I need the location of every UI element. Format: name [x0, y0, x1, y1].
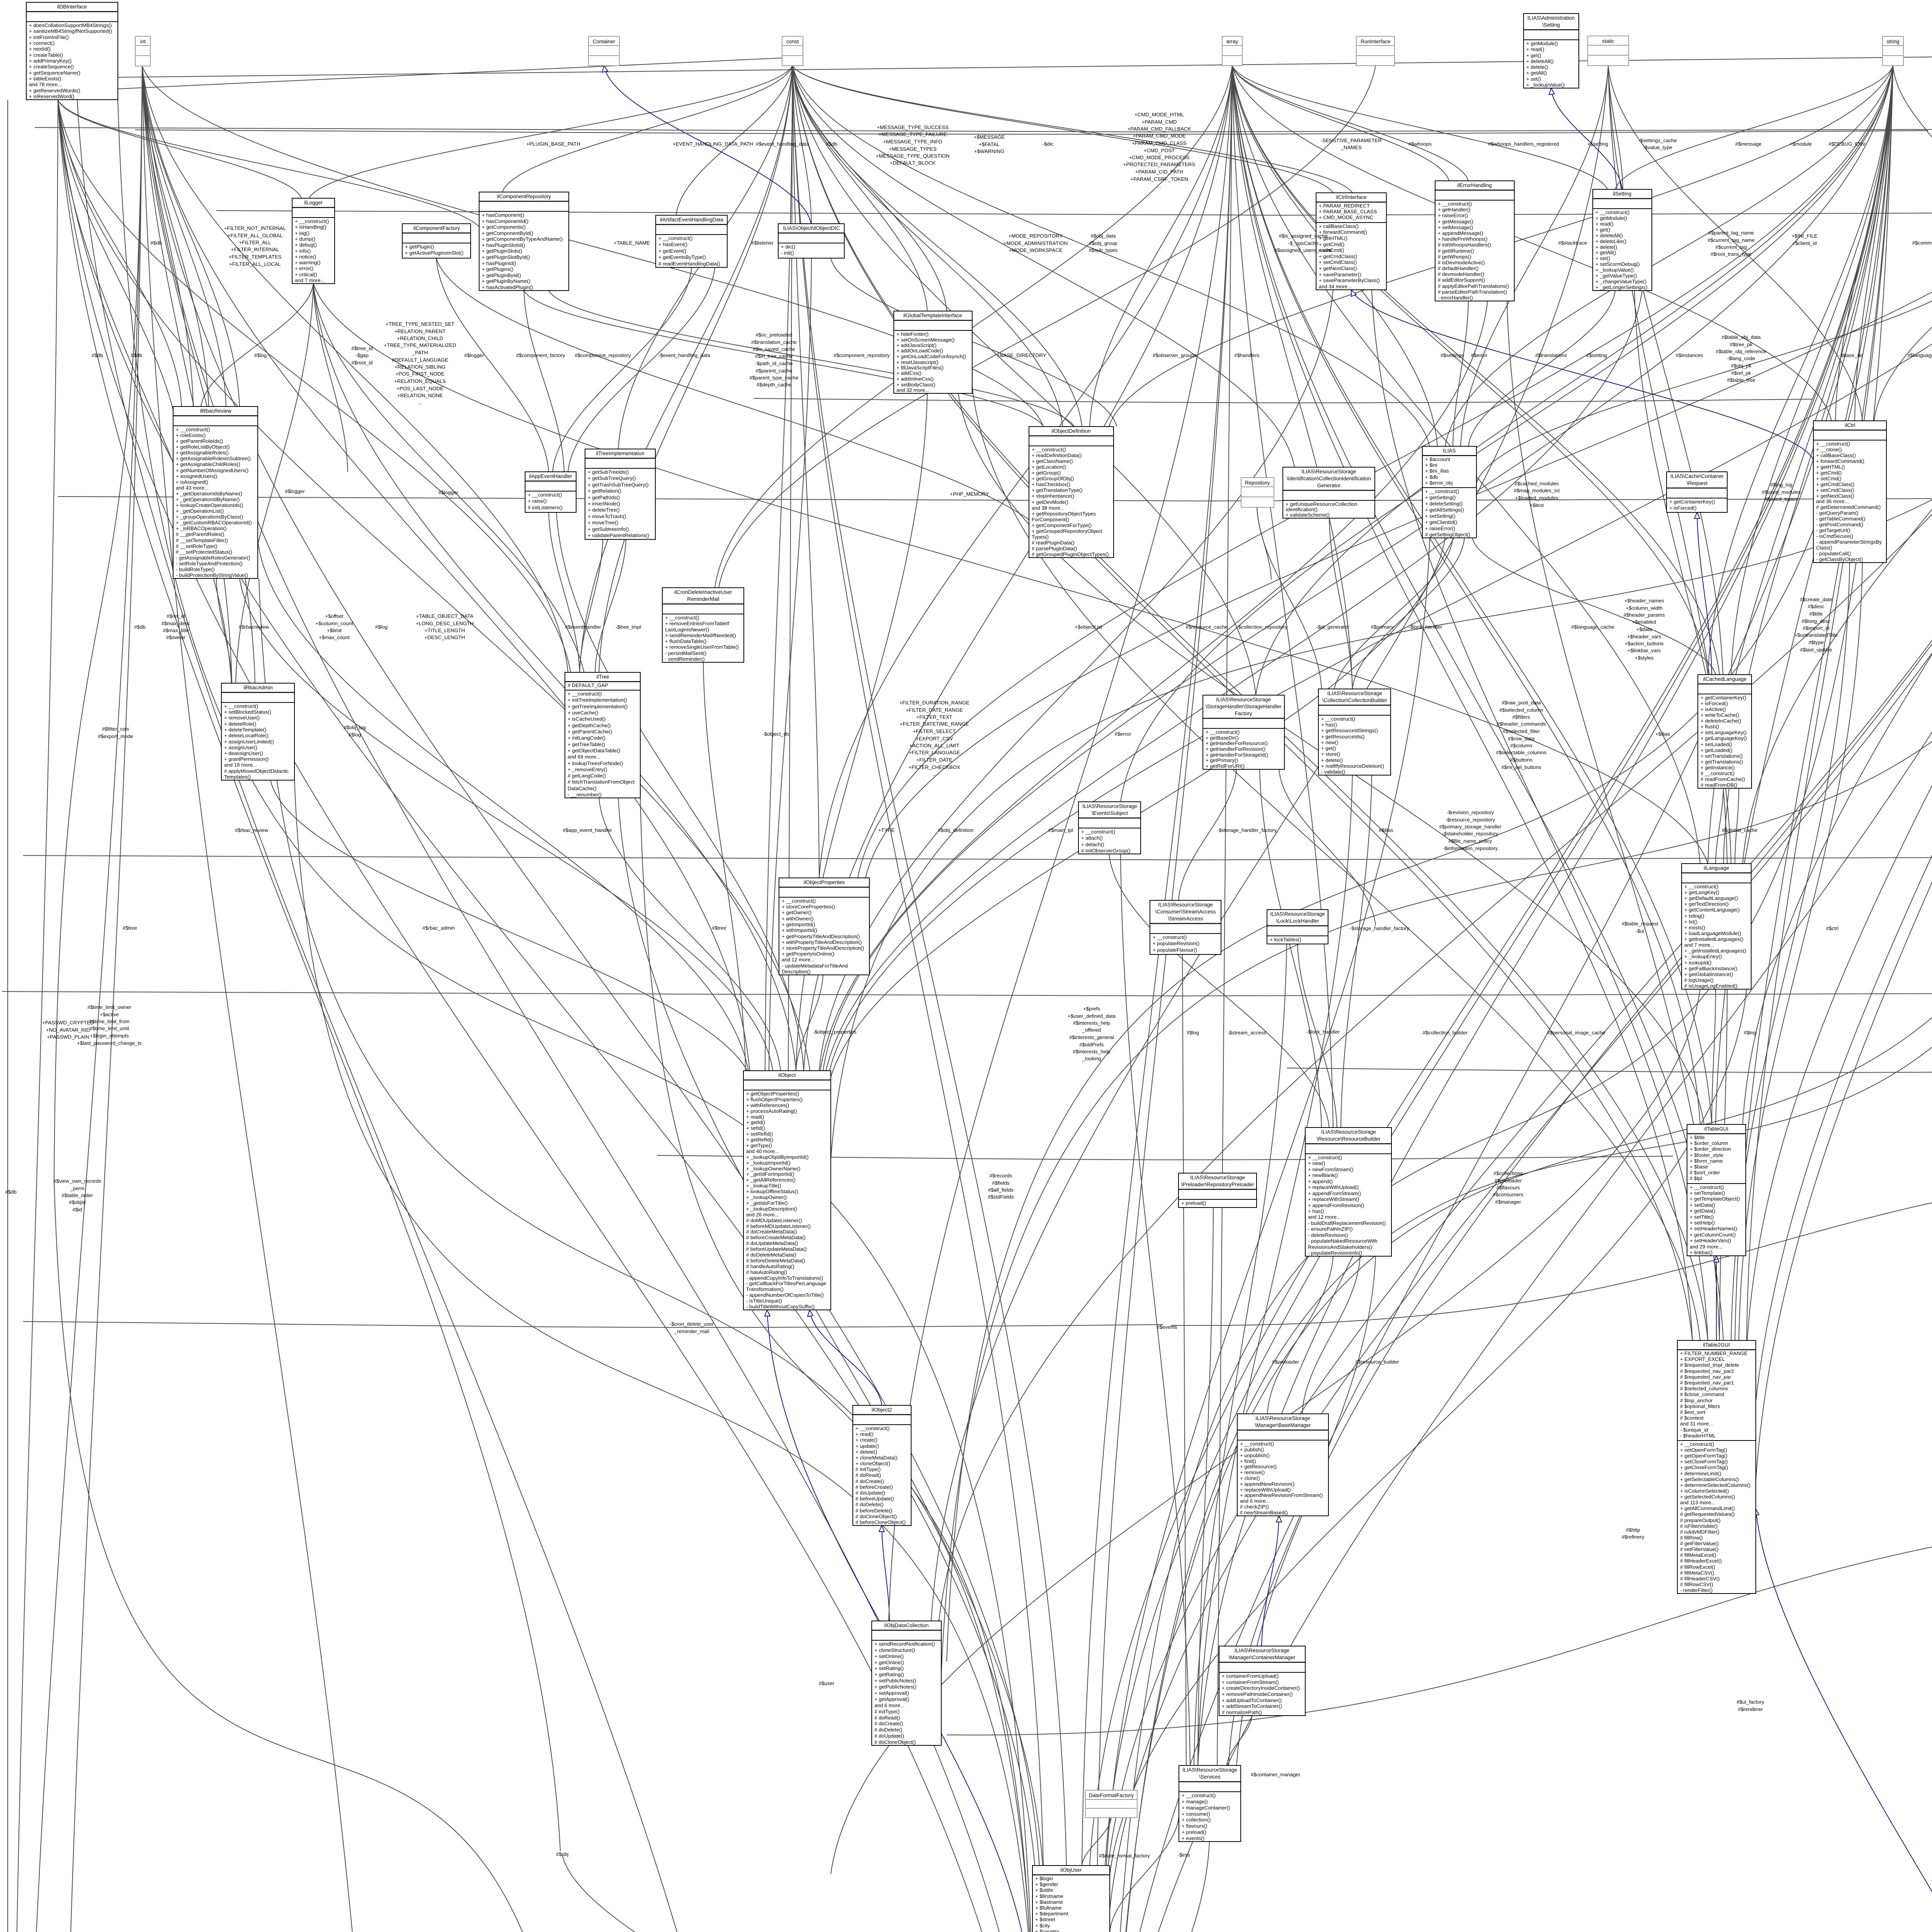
svg-text:#$parent_tag_name: #$parent_tag_name — [1708, 230, 1754, 236]
svg-text:+ getRelation(): + getRelation() — [588, 488, 621, 494]
svg-text:\Identification\CollectionIden: \Identification\CollectionIdentification — [1287, 476, 1371, 481]
svg-text:+ cloneStructure(): + cloneStructure() — [874, 1647, 915, 1653]
svg-text:#$logger: #$logger — [438, 490, 458, 495]
svg-text:# doRead(): # doRead() — [855, 1472, 881, 1478]
svg-text:#$raw_post_data: #$raw_post_data — [1502, 700, 1541, 706]
svg-text:+MESSAGE_TYPE_INFO: +MESSAGE_TYPE_INFO — [883, 139, 942, 145]
svg-text:+ flavours(): + flavours() — [1182, 1823, 1207, 1829]
svg-text:-$lang_code: -$lang_code — [1727, 355, 1755, 361]
svg-text:+ deleteAll(): + deleteAll() — [1526, 58, 1554, 64]
svg-text:and 34 more...: and 34 more... — [1319, 284, 1352, 289]
svg-text:-$storage_handler_factory: -$storage_handler_factory — [1217, 827, 1277, 833]
svg-text:#$stdFields: #$stdFields — [988, 1194, 1014, 1200]
svg-text:- getPostCommand(): - getPostCommand() — [1816, 522, 1863, 527]
svg-text:+ clone(): + clone() — [1240, 1475, 1260, 1481]
svg-text:-$collection_repository: -$collection_repository — [1236, 624, 1287, 630]
svg-text:+DEFAULT_BLOCK: +DEFAULT_BLOCK — [890, 160, 935, 166]
svg-text:+RELATION_CHILD: +RELATION_CHILD — [397, 335, 443, 341]
svg-text:ilTable2GUI: ilTable2GUI — [1703, 1342, 1730, 1348]
svg-text:+ $ini_ilias: + $ini_ilias — [1425, 468, 1449, 474]
svg-text:+ getPrimary(): + getPrimary() — [1206, 757, 1238, 763]
svg-text:+ setScormDebug(): + setScormDebug() — [1595, 261, 1640, 267]
svg-text:+ validateParentRelations(): + validateParentRelations() — [588, 532, 649, 538]
svg-text:+ getClassName(): + getClassName() — [1032, 458, 1073, 464]
svg-text:+ callBaseClass(): + callBaseClass() — [1816, 452, 1856, 458]
svg-text:+ getNextClass(): + getNextClass() — [1319, 265, 1357, 271]
svg-text:#$global_cache: #$global_cache — [1722, 827, 1757, 833]
svg-text:+ getHandler(): + getHandler() — [1438, 207, 1471, 213]
svg-text:+ $gender: + $gender — [1035, 1881, 1058, 1887]
svg-text:+TREE_TYPE_NESTED_SET: +TREE_TYPE_NESTED_SET — [386, 321, 454, 327]
svg-text:- populateCall(): - populateCall() — [1816, 551, 1851, 556]
svg-text:+ getMessage(): + getMessage() — [1438, 219, 1473, 224]
svg-text:+ getCmdClass(): + getCmdClass() — [1816, 481, 1854, 487]
svg-text:+ setTemplate(): + setTemplate() — [1690, 1190, 1725, 1196]
svg-text:+ set(): + set() — [1526, 76, 1541, 82]
svg-text:#$column: #$column — [1510, 743, 1532, 748]
svg-text:+ nextId(): + nextId() — [29, 46, 51, 52]
svg-text:+PARAM_CMD_CLASS: +PARAM_CMD_CLASS — [1132, 140, 1187, 146]
svg-text:ilCachedLanguage: ilCachedLanguage — [1703, 676, 1747, 682]
svg-text:+ setTranslations(): + setTranslations() — [1701, 753, 1743, 759]
svg-text:+ getAllSettings(): + getAllSettings() — [1425, 507, 1464, 513]
svg-text:+ _getAllReferences(): + _getAllReferences() — [746, 1177, 796, 1183]
svg-text:+ initFromIniFile(): + initFromIniFile() — [29, 34, 69, 40]
svg-text:#$db: #$db — [92, 352, 103, 358]
svg-text:\Preloader\RepositoryPreloader: \Preloader\RepositoryPreloader — [1181, 1182, 1254, 1187]
svg-text:+ getPluginById(): + getPluginById() — [482, 272, 521, 278]
svg-text:+ PARAM_BASE_CLASS: + PARAM_BASE_CLASS — [1319, 209, 1377, 214]
svg-text:# getGroupedPluginObjectTypes(: # getGroupedPluginObjectTypes() — [1032, 551, 1109, 557]
svg-text:+ delete(): + delete() — [855, 1449, 877, 1455]
svg-text:+ isReservedWord(): + isReservedWord() — [29, 94, 74, 99]
svg-text:- getAssignableRolesGenerator(: - getAssignableRolesGenerator() — [176, 555, 250, 561]
svg-text:# getIlRuntime(): # getIlRuntime() — [1438, 248, 1474, 254]
svg-text:+ manageContainer(): + manageContainer() — [1182, 1805, 1230, 1811]
svg-text:+ assignUserLimited(): + assignUserLimited() — [224, 739, 274, 745]
svg-text:+ getAssignableChildRoles(): + getAssignableChildRoles() — [176, 461, 240, 467]
svg-text:# logUsage(): # logUsage() — [1684, 977, 1714, 983]
svg-text:#$personal_image_cache: #$personal_image_cache — [1547, 1030, 1605, 1036]
svg-text:+ __construct(): + __construct() — [1206, 729, 1240, 735]
svg-text:# doDelete(): # doDelete() — [874, 1727, 903, 1733]
svg-text:+$data: +$data — [1636, 626, 1652, 632]
svg-text:+ getModule(): + getModule() — [1526, 41, 1558, 46]
svg-text:+$setting: +$setting — [1587, 141, 1608, 147]
svg-text:+ raiseError(): + raiseError() — [1425, 526, 1455, 531]
svg-text:#$oc_preloaded: #$oc_preloaded — [756, 332, 793, 338]
svg-text:#$whoops: #$whoops — [1408, 141, 1432, 147]
svg-text:+ __construct(): + __construct() — [1680, 1441, 1714, 1447]
svg-text:# doCreateMetaData(): # doCreateMetaData() — [746, 1229, 797, 1235]
svg-text:+ getPlugins(): + getPlugins() — [482, 266, 514, 272]
svg-text:\Services: \Services — [1199, 1774, 1221, 1780]
svg-text:+ stopInheritance(): + stopInheritance() — [1032, 493, 1074, 499]
svg-text:- getTableCommand(): - getTableCommand() — [1816, 516, 1866, 522]
svg-text:# beforeUpdateMetaData(): # beforeUpdateMetaData() — [746, 1246, 807, 1252]
svg-text:+ fillJavaScriptFiles(): + fillJavaScriptFiles() — [896, 365, 944, 371]
svg-text:_NAMES: _NAMES — [1340, 145, 1362, 150]
svg-text:#$preloader: #$preloader — [1495, 1178, 1522, 1184]
svg-text:ILIAS\ResourceStorage: ILIAS\ResourceStorage — [1255, 1415, 1310, 1421]
svg-text:#$primary_storage_handler: #$primary_storage_handler — [1439, 824, 1502, 830]
svg-text:# $requested_tmpl_delete: # $requested_tmpl_delete — [1680, 1362, 1739, 1368]
svg-text:+ setBodyClass(): + setBodyClass() — [896, 382, 935, 388]
svg-text:# fillRowExcel(): # fillRowExcel() — [1680, 1564, 1715, 1570]
svg-text:+ __construct(): + __construct() — [295, 218, 329, 224]
svg-text:# doUpdate(): # doUpdate() — [855, 1490, 885, 1496]
svg-text:+ getSubTreeQuery(): + getSubTreeQuery() — [588, 475, 636, 481]
svg-text:- getClassByObject(): - getClassByObject() — [1816, 556, 1863, 562]
svg-text:+ $order_direction: + $order_direction — [1690, 1146, 1731, 1152]
svg-text:Repository: Repository — [1245, 480, 1270, 486]
svg-text:#$ref_pk: #$ref_pk — [1731, 370, 1751, 376]
svg-text:+ _lookupValue(): + _lookupValue() — [1595, 267, 1634, 273]
svg-text:+ setApproval(): + setApproval() — [874, 1690, 909, 1696]
svg-text:+$text: +$text — [1530, 502, 1544, 508]
svg-text:-$lock_handler: -$lock_handler — [1306, 1029, 1340, 1035]
svg-text:#$obj_log: #$obj_log — [344, 724, 366, 730]
svg-text:+ remove(): + remove() — [1240, 1469, 1265, 1475]
svg-text:# $optional_filters: # $optional_filters — [1680, 1403, 1720, 1409]
svg-text:+ _getIdsForTitle(): + _getIdsForTitle() — [746, 1200, 788, 1206]
svg-text:# beforeUpdate(): # beforeUpdate() — [855, 1496, 894, 1502]
svg-text:+ setHelp(): + setHelp() — [1690, 1220, 1715, 1226]
svg-text:+ manage(): + manage() — [1182, 1799, 1208, 1804]
svg-text:+ deleteSetting(): + deleteSetting() — [1425, 501, 1463, 507]
svg-text:+ appendMessage(): + appendMessage() — [1438, 230, 1483, 236]
svg-text:ilObject: ilObject — [778, 1072, 796, 1078]
svg-text:+ replaceWithStream(): + replaceWithStream() — [1308, 1196, 1359, 1202]
svg-text:+ getResource(): + getResource() — [1240, 1464, 1277, 1469]
svg-text:#$in_tree_cache: #$in_tree_cache — [755, 353, 793, 359]
svg-text:# getWhoops(): # getWhoops() — [1438, 254, 1471, 260]
svg-text:+ storeCoreProperties(): + storeCoreProperties() — [782, 904, 835, 910]
svg-text:+ $fullname: + $fullname — [1035, 1905, 1062, 1911]
svg-text:#$date_format_factory: #$date_format_factory — [1099, 1853, 1150, 1859]
svg-text:+ isColumnSelected(): + isColumnSelected() — [1680, 1488, 1729, 1494]
svg-text:# newStreamBased(): # newStreamBased() — [1240, 1510, 1288, 1515]
svg-text:#$all_fields: #$all_fields — [988, 1187, 1014, 1193]
svg-text:+ getSubtreeInfo(): + getSubtreeInfo() — [588, 526, 629, 532]
svg-text:\Events\Subject: \Events\Subject — [1092, 810, 1128, 816]
svg-text:+ populateFlavour(): + populateFlavour() — [1153, 947, 1197, 953]
svg-text:#$consumers: #$consumers — [1493, 1192, 1524, 1197]
svg-text:ILIAS\ResourceStorage: ILIAS\ResourceStorage — [1082, 803, 1137, 809]
svg-text:+ __construct(): + __construct() — [1032, 447, 1066, 452]
svg-text:# setFilterValue(): # setFilterValue() — [1680, 1546, 1718, 1552]
svg-text:ilDBInterface: ilDBInterface — [57, 4, 87, 10]
svg-text:+ _lookupImportId(): + _lookupImportId() — [746, 1160, 791, 1166]
svg-text:# parsePluginData(): # parsePluginData() — [1032, 546, 1077, 551]
svg-text:+ storePropertyTitleAndDescrip: + storePropertyTitleAndDescription() — [782, 945, 864, 951]
svg-text:#$buttons: #$buttons — [1510, 757, 1532, 763]
svg-text:+ writeToCache(): + writeToCache() — [1701, 712, 1739, 718]
svg-text:+ $error_obj: + $error_obj — [1425, 480, 1453, 486]
svg-text:ilGlobalTemplateInterface: ilGlobalTemplateInterface — [903, 313, 962, 318]
svg-text:- appendParameterStringsBy: - appendParameterStringsBy — [1816, 539, 1882, 545]
svg-text:#$max_title: #$max_title — [163, 628, 189, 633]
svg-text:# readFromCache(): # readFromCache() — [1701, 776, 1745, 782]
svg-text:#$instances: #$instances — [1676, 352, 1703, 358]
svg-text:+ store(): + store() — [1321, 751, 1340, 757]
svg-text:Templates(): Templates() — [224, 774, 251, 780]
svg-text:+ attach(): + attach() — [1081, 835, 1103, 841]
svg-text:+$untranslatedTitle: +$untranslatedTitle — [1794, 632, 1838, 638]
svg-text:+ getCloseFormTag(): + getCloseFormTag() — [1680, 1464, 1728, 1470]
svg-text:+ new(): + new() — [1321, 740, 1338, 745]
svg-text:\Lock\LockHandler: \Lock\LockHandler — [1276, 918, 1319, 924]
svg-text:+PARAM_CMD: +PARAM_CMD — [1142, 119, 1177, 125]
svg-text:\Collection\CollectionBuilder: \Collection\CollectionBuilder — [1322, 697, 1388, 703]
svg-text:+$client_id: +$client_id — [1792, 240, 1816, 246]
svg-text:+ delete(): + delete() — [1595, 244, 1617, 250]
svg-text:+ appendFromStream(): + appendFromStream() — [1308, 1190, 1361, 1196]
svg-text:ilCronDeleteInactiveUser: ilCronDeleteInactiveUser — [674, 589, 732, 595]
svg-text:+$column_count: +$column_count — [315, 621, 353, 626]
svg-text:#$preloader: #$preloader — [1272, 1359, 1299, 1365]
svg-text:#$error: #$error — [1471, 352, 1488, 358]
svg-text:# readFromDB(): # readFromDB() — [1701, 782, 1737, 788]
svg-text:+ appendNewRevision(): + appendNewRevision() — [1240, 1481, 1294, 1487]
svg-text:+ newFromStream(): + newFromStream() — [1308, 1167, 1354, 1172]
svg-text:+ $country: + $country — [1035, 1929, 1059, 1932]
svg-text:and 69 more...: and 69 more... — [568, 754, 600, 760]
svg-text:+ deleteTemplate(): + deleteTemplate() — [224, 727, 267, 733]
svg-text:+ getRefId(): + getRefId() — [746, 1137, 773, 1143]
svg-text:+ $db: + $db — [1425, 474, 1438, 480]
svg-text:Generator: Generator — [1317, 483, 1341, 488]
svg-text:ReminderMail: ReminderMail — [687, 596, 719, 602]
svg-text:#$interests_general: #$interests_general — [1069, 1034, 1114, 1040]
svg-text:+ _getOperationIdsByName(): + _getOperationIdsByName() — [176, 491, 242, 497]
svg-text:#$current_tag: #$current_tag — [1715, 244, 1747, 250]
svg-text:-$settings_cache: -$settings_cache — [1638, 138, 1677, 143]
svg-text:+ addUploadToContainer(): + addUploadToContainer() — [1222, 1697, 1282, 1703]
svg-text:#$records: #$records — [990, 1173, 1012, 1179]
svg-text:+ linkbar(): + linkbar() — [1690, 1250, 1713, 1255]
svg-text:+ getImportId(): + getImportId() — [782, 922, 815, 927]
svg-text:+ hasActivatedPlugin(): + hasActivatedPlugin() — [482, 284, 533, 290]
svg-text:+ lookupOfflineStatus(): + lookupOfflineStatus() — [746, 1189, 798, 1194]
svg-text:+ append(): + append() — [1308, 1179, 1333, 1184]
svg-text:+ cloneObject(): + cloneObject() — [855, 1461, 890, 1466]
svg-text:+ getLanguageKey(): + getLanguageKey() — [1701, 735, 1747, 741]
svg-text:+ getEvent(): + getEvent() — [658, 248, 686, 254]
svg-text:#$stacktrace: #$stacktrace — [1558, 240, 1587, 246]
svg-text:+ getObjectProperties(): + getObjectProperties() — [746, 1091, 799, 1097]
svg-text:+ saveParameter(): + saveParameter() — [1319, 272, 1361, 277]
svg-text:string: string — [1886, 39, 1899, 44]
svg-text:+$header_vars: +$header_vars — [1627, 634, 1662, 639]
svg-text:+MODE_WORKSPACE: +MODE_WORKSPACE — [1009, 247, 1063, 253]
svg-text:+ appendFromRevision(): + appendFromRevision() — [1308, 1202, 1364, 1208]
svg-text:+$linkbar_vars: +$linkbar_vars — [1628, 648, 1661, 653]
svg-text:+ replaceWithUpload(): + replaceWithUpload() — [1308, 1184, 1359, 1190]
svg-text:\Request: \Request — [1687, 480, 1708, 486]
svg-text:+ getClientId(): + getClientId() — [1425, 519, 1457, 525]
svg-text:#$tree: #$tree — [122, 925, 137, 931]
svg-text:# __setRoleType(): # __setRoleType() — [176, 543, 218, 549]
svg-text:- buildDraftReplacementRevisio: - buildDraftReplacementRevision() — [1308, 1220, 1386, 1226]
svg-text:+FILTER_ALL: +FILTER_ALL — [239, 240, 271, 245]
svg-text:#$root_trans_type: #$root_trans_type — [1711, 251, 1752, 257]
svg-text:+ setId(): + setId() — [746, 1125, 765, 1131]
svg-text:+ appendNewRevisionFromStream(: + appendNewRevisionFromStream() — [1240, 1492, 1323, 1498]
svg-text:+ deleteAll(): + deleteAll() — [1595, 233, 1623, 238]
svg-text:+ replaceWithUpload(): + replaceWithUpload() — [1240, 1487, 1291, 1493]
svg-text:+ setCmdClass(): + setCmdClass() — [1816, 487, 1854, 493]
svg-text:+ get(): + get() — [1321, 745, 1336, 751]
svg-text:- populateNakedResourceWith: - populateNakedResourceWith — [1308, 1238, 1378, 1244]
svg-text:ilObjectDefinition: ilObjectDefinition — [1051, 428, 1090, 434]
svg-text:ilObjDataCollection: ilObjDataCollection — [884, 1622, 929, 1628]
svg-text:#$flavours: #$flavours — [1497, 1185, 1520, 1190]
svg-text:# applyMovedObjectDidactic: # applyMovedObjectDidactic — [224, 768, 289, 774]
svg-text:DataCache(): DataCache() — [568, 786, 597, 791]
svg-text:+ getModule(): + getModule() — [1595, 215, 1627, 221]
svg-text:-$lock_handler: -$lock_handler — [1409, 624, 1442, 630]
svg-text:+ getPluginByName(): + getPluginByName() — [482, 278, 531, 284]
svg-text:and 31 more...: and 31 more... — [1680, 1421, 1713, 1427]
svg-text:+ getGlobalInstance(): + getGlobalInstance() — [1684, 971, 1733, 977]
svg-text:+ setSetting(): + setSetting() — [1425, 513, 1456, 519]
svg-text:+ deleteTree(): + deleteTree() — [588, 507, 620, 513]
svg-text:array: array — [1226, 39, 1238, 44]
svg-text:+ _lookupOwner(): + _lookupOwner() — [746, 1194, 787, 1200]
svg-text:+ getAll(): + getAll() — [1526, 70, 1547, 76]
svg-text:and 78 more...: and 78 more... — [29, 82, 62, 87]
svg-text:+ getDevMode(): + getDevMode() — [1032, 499, 1068, 505]
svg-text:# $ext_sort: # $ext_sort — [1680, 1409, 1706, 1415]
svg-text:#$oldPrefs: #$oldPrefs — [1079, 1042, 1104, 1048]
svg-text:+FILTER_DURATION_RANGE: +FILTER_DURATION_RANGE — [899, 700, 969, 706]
svg-text:+MODE_REPOSITORY: +MODE_REPOSITORY — [1009, 233, 1063, 239]
svg-text:# readPluginData(): # readPluginData() — [1032, 540, 1075, 546]
svg-text:+$offset: +$offset — [325, 613, 343, 619]
svg-text:-$revision_repository: -$revision_repository — [1447, 810, 1494, 815]
svg-text:\StorageHandler\StorageHandler: \StorageHandler\StorageHandler — [1206, 704, 1282, 709]
svg-text:#$resource_builder: #$resource_builder — [1355, 1359, 1400, 1365]
svg-text:+ __construct(): + __construct() — [1690, 1184, 1724, 1190]
svg-text:#$logger: #$logger — [464, 352, 484, 358]
svg-text:#$log: #$log — [349, 732, 361, 738]
svg-text:#$ref_id: #$ref_id — [167, 613, 185, 619]
svg-text:+ getComponentByTypeAndName(): + getComponentByTypeAndName() — [482, 236, 563, 242]
svg-text:# beforeCreateMetaData(): # beforeCreateMetaData() — [746, 1235, 806, 1240]
svg-text:# isFilterVisible(): # isFilterVisible() — [1680, 1523, 1718, 1529]
svg-text:+ getComponents(): + getComponents() — [482, 224, 526, 230]
svg-text:# fillRowCSV(): # fillRowCSV() — [1680, 1582, 1713, 1587]
svg-text:# beforeMDUpdateListener(): # beforeMDUpdateListener() — [746, 1223, 811, 1229]
svg-text:+ getPluginSlotById(): + getPluginSlotById() — [482, 254, 530, 260]
svg-text:+$action_buttons: +$action_buttons — [1625, 641, 1664, 646]
svg-text:#$ui_factory: #$ui_factory — [1736, 1699, 1764, 1705]
svg-text:+ get(): + get() — [1526, 53, 1541, 58]
svg-text:...: ... — [418, 400, 422, 405]
svg-text:+ has(): + has() — [1308, 1208, 1324, 1214]
svg-text:+ log(): + log() — [295, 230, 310, 236]
svg-text:# doCreate(): # doCreate() — [874, 1721, 903, 1726]
svg-text:+$login_attempts: +$login_attempts — [90, 1033, 129, 1039]
svg-text:#$type: #$type — [1808, 639, 1824, 645]
svg-text:#$component_repository: #$component_repository — [833, 352, 890, 358]
svg-text:ilTableGUI: ilTableGUI — [1704, 1126, 1728, 1132]
svg-text:#$renderer: #$renderer — [1738, 1706, 1763, 1712]
svg-text:+EVENT_HANDLING_DATA_PATH: +EVENT_HANDLING_DATA_PATH — [673, 141, 753, 147]
svg-text:+ getNumberOfAssignedUsers(): + getNumberOfAssignedUsers() — [176, 468, 248, 473]
svg-text:# $tpl: # $tpl — [1690, 1175, 1702, 1181]
svg-text:+ detach(): + detach() — [1081, 842, 1104, 847]
svg-text:+ __clone(): + __clone() — [1816, 447, 1842, 452]
svg-text:# isAdvMDFilter(): # isAdvMDFilter() — [1680, 1529, 1719, 1535]
svg-text:+ _removeEntry(): + _removeEntry() — [568, 767, 607, 772]
svg-text:#$setting: #$setting — [1586, 352, 1607, 358]
svg-text:+ initTreeImplementation(): + initTreeImplementation() — [568, 697, 627, 703]
svg-text:#$db: #$db — [150, 240, 162, 246]
svg-text:+ setLoaded(): + setLoaded() — [1701, 742, 1732, 747]
svg-text:+ consume(): + consume() — [1182, 1811, 1210, 1817]
svg-text:Types(): Types() — [1032, 534, 1049, 540]
svg-text:#$filter_cols: #$filter_cols — [102, 726, 129, 732]
svg-text:+ handlePreWhoops(): + handlePreWhoops() — [1438, 236, 1488, 242]
svg-text:\StreamAccess: \StreamAccess — [1168, 916, 1203, 922]
svg-text:-$irss: -$irss — [1178, 1852, 1190, 1858]
svg-text:+ getEventsByType(): + getEventsByType() — [658, 254, 706, 260]
svg-text:ilObjUser: ilObjUser — [1060, 1867, 1082, 1873]
svg-text:#$component_repository: #$component_repository — [575, 352, 631, 358]
svg-text:+ update(): + update() — [855, 1443, 879, 1449]
svg-text:#$language_key: #$language_key — [1908, 352, 1932, 358]
svg-text:+ isForced(): + isForced() — [1701, 701, 1728, 706]
svg-text:+ __construct(): + __construct() — [224, 703, 258, 709]
svg-text:+ getActivePluginsInSlot(): + getActivePluginsInSlot() — [405, 250, 463, 256]
svg-text:+ initLangCode(): + initLangCode() — [568, 735, 605, 741]
svg-text:# $close_command: # $close_command — [1680, 1391, 1724, 1397]
svg-text:+ set(): + set() — [1595, 255, 1610, 261]
svg-text:+ getId(): + getId() — [746, 1119, 765, 1125]
svg-text:# initType(): # initType() — [855, 1466, 881, 1472]
svg-text:#$time_limit_until: #$time_limit_until — [90, 1026, 129, 1031]
svg-text:# isUsageLogEnabled(): # isUsageLogEnabled() — [1684, 983, 1738, 989]
svg-text:+ getSubTreeIds(): + getSubTreeIds() — [588, 469, 629, 475]
svg-text:+ read(): + read() — [855, 1431, 874, 1437]
svg-text:+TABLE_NAME: +TABLE_NAME — [614, 240, 650, 246]
svg-text:+ getTreeTable(): + getTreeTable() — [568, 742, 605, 747]
svg-text:+ withPropertyTitleAndDescript: + withPropertyTitleAndDescription() — [782, 939, 862, 945]
svg-text:ILIAS\Cache\Container: ILIAS\Cache\Container — [1670, 473, 1724, 479]
svg-text:-$stream_access: -$stream_access — [1228, 1030, 1267, 1036]
svg-text:+PARAM_CMD_MODE: +PARAM_CMD_MODE — [1133, 133, 1186, 139]
svg-text:#$rbac_admin: #$rbac_admin — [422, 925, 455, 931]
svg-text:+ getResourceIds(): + getResourceIds() — [1321, 734, 1365, 740]
svg-text:#$observer_groups: #$observer_groups — [1153, 352, 1197, 358]
svg-text:# doCreate(): # doCreate() — [855, 1478, 884, 1484]
svg-text:+ $utitle: + $utitle — [1035, 1887, 1053, 1893]
svg-text:+DESC_LENGTH: +DESC_LENGTH — [424, 634, 465, 640]
svg-text:+ _changeValueType(): + _changeValueType() — [1595, 279, 1646, 284]
svg-text:_PATH: _PATH — [412, 350, 428, 355]
svg-text:+MESSAGE_TYPES: +MESSAGE_TYPES — [889, 146, 937, 152]
svg-text:ILIAS\Administration: ILIAS\Administration — [1527, 15, 1575, 21]
svg-text:+ withImportId(): + withImportId() — [782, 927, 817, 933]
svg-text:ilComponentRepository: ilComponentRepository — [497, 194, 551, 199]
svg-text:+ getType(): + getType() — [746, 1143, 772, 1148]
svg-text:-$resource_repository: -$resource_repository — [1446, 817, 1495, 823]
svg-text:#$filters: #$filters — [1512, 714, 1531, 720]
svg-text:+ getSequenceName(): + getSequenceName() — [29, 70, 80, 76]
svg-text:+ getApproval(): + getApproval() — [874, 1696, 910, 1702]
